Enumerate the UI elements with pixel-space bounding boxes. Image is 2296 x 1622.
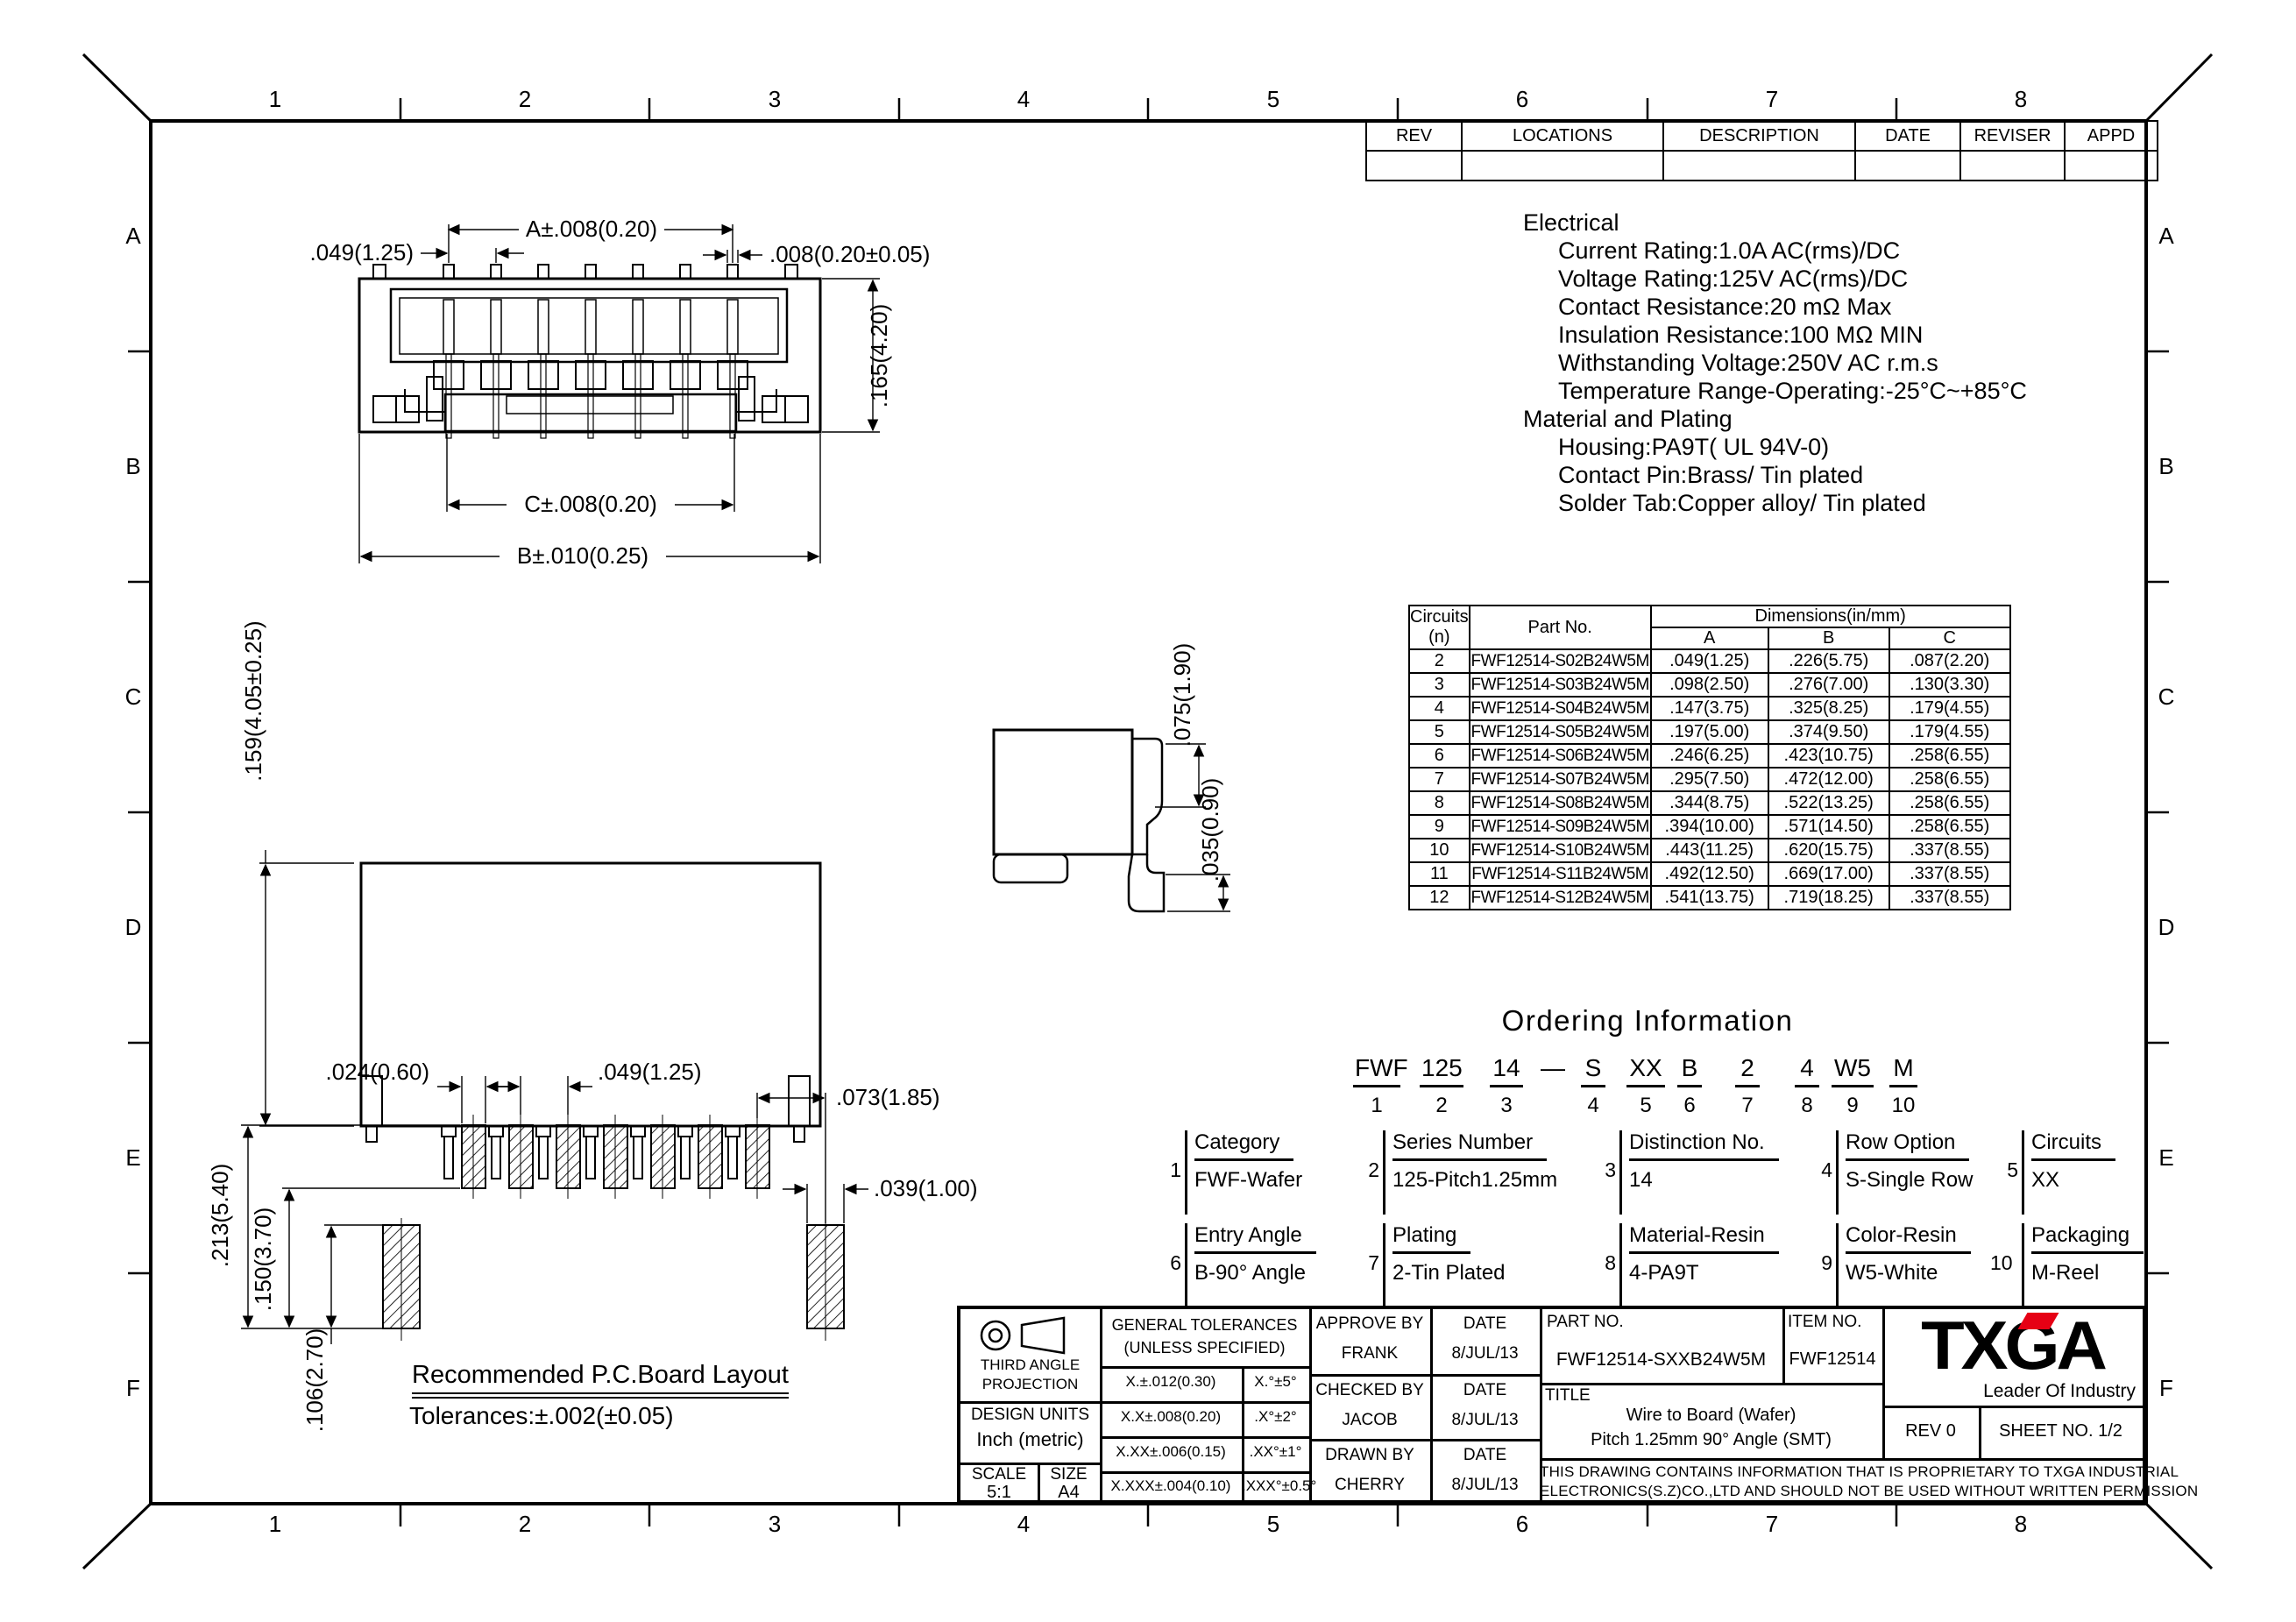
proprietary-notice-line2: ELECTRONICS(S.Z)CO.,LTD AND SHOULD NOT B… xyxy=(1540,1483,2143,1500)
dim-top-span-c: C±.008(0.20) xyxy=(524,491,657,517)
border-row-label: C xyxy=(2149,684,2184,711)
item-no-value: FWF12514 xyxy=(1782,1349,1882,1370)
table-row: 8FWF12514-S08B24W5M.344(8.75).522(13.25)… xyxy=(1409,791,2010,815)
border-row-label: B xyxy=(116,453,151,480)
material-title: Material and Plating xyxy=(1523,405,2027,433)
dim-pcb-mid-height: .150(3.70) xyxy=(250,1208,276,1312)
border-row-label: F xyxy=(2149,1375,2184,1402)
tolerance-linear: X.XX±.006(0.15) xyxy=(1102,1443,1240,1461)
border-col-label: 5 xyxy=(1256,86,1291,113)
scale-value: 5:1 xyxy=(960,1483,1038,1503)
date-value: 8/JUL/13 xyxy=(1430,1476,1540,1495)
general-tolerances-label: GENERAL TOLERANCES xyxy=(1100,1316,1309,1335)
date-label: DATE xyxy=(1430,1381,1540,1400)
ordering-field-series: 2 Series Number125-Pitch1.25mm xyxy=(1383,1130,1557,1215)
rev-value: REV 0 xyxy=(1882,1421,1979,1441)
date-value: 8/JUL/13 xyxy=(1430,1411,1540,1430)
drawing-title-line2: Pitch 1.25mm 90° Angle (SMT) xyxy=(1540,1430,1882,1450)
part-code-segment: S4 xyxy=(1581,1054,1605,1118)
border-col-label: 2 xyxy=(507,86,542,113)
tolerance-linear: X.±.012(0.30) xyxy=(1102,1373,1240,1391)
table-row: 6FWF12514-S06B24W5M.246(6.25).423(10.75)… xyxy=(1409,744,2010,768)
table-row: 12FWF12514-S12B24W5M.541(13.75).719(18.2… xyxy=(1409,886,2010,910)
dim-a-header: A xyxy=(1651,627,1768,649)
border-col-label: 8 xyxy=(2003,1511,2038,1538)
border-row-label: E xyxy=(116,1144,151,1172)
part-code-segment: B6 xyxy=(1677,1054,1702,1118)
table-row: 11FWF12514-S11B24W5M.492(12.50).669(17.0… xyxy=(1409,862,2010,886)
title-label: TITLE xyxy=(1545,1386,1591,1406)
part-code-segment: 1252 xyxy=(1420,1054,1463,1118)
txga-logo: TXGA Leader Of Industry xyxy=(1882,1309,2143,1406)
ordering-field-packaging: 10 PackagingM-Reel xyxy=(2022,1223,2144,1307)
date-header: DATE xyxy=(1855,121,1960,151)
border-col-label: 8 xyxy=(2003,86,2038,113)
txga-logo-text: TXGA xyxy=(1877,1306,2148,1385)
border-col-label: 7 xyxy=(1754,86,1789,113)
revision-empty-row xyxy=(1366,151,2158,181)
dim-pcb-pitch: .049(1.25) xyxy=(598,1059,702,1085)
ordering-field-distinction: 3 Distinction No.14 xyxy=(1619,1130,1779,1215)
drawing-title-line1: Wire to Board (Wafer) xyxy=(1540,1406,1882,1426)
drawing-sheet: A±.008(0.20) .049(1.25) .008(0.20±0.05) … xyxy=(0,0,2296,1622)
dim-pcb-tab-height: .106(2.70) xyxy=(301,1328,328,1433)
revision-table: REV LOCATIONS DESCRIPTION DATE REVISER A… xyxy=(1365,120,2158,181)
spec-line: Contact Resistance:20 mΩ Max xyxy=(1523,293,2027,321)
date-label: DATE xyxy=(1430,1314,1540,1334)
pcb-dimensions xyxy=(241,1076,868,1344)
pcb-layout xyxy=(241,1076,868,1344)
sheet-no-value: SHEET NO. 1/2 xyxy=(1979,1421,2143,1441)
tolerance-angular: .X°±2° xyxy=(1242,1408,1309,1426)
border-col-label: 4 xyxy=(1006,86,1041,113)
border-col-label: 1 xyxy=(258,86,293,113)
circuits-header: Circuits(n) xyxy=(1409,606,1470,649)
date-label: DATE xyxy=(1430,1446,1540,1465)
border-col-label: 2 xyxy=(507,1511,542,1538)
drawn-by-name: CHERRY xyxy=(1309,1476,1430,1495)
dim-top-height: .165(4.20) xyxy=(866,304,892,408)
part-code-segment: 27 xyxy=(1735,1054,1760,1118)
dim-front-height: .159(4.05±0.25) xyxy=(240,620,266,781)
rev-header: REV xyxy=(1366,121,1462,151)
border-col-label: 5 xyxy=(1256,1511,1291,1538)
tolerance-angular: .XX°±1° xyxy=(1242,1443,1309,1461)
proprietary-notice-line1: THIS DRAWING CONTAINS INFORMATION THAT I… xyxy=(1540,1463,2143,1481)
dim-pcb-pad-width: .024(0.60) xyxy=(325,1059,429,1085)
checked-by-name: JACOB xyxy=(1309,1411,1430,1430)
part-code-segment: M10 xyxy=(1889,1054,1917,1118)
ordering-field-row-option: 4 Row OptionS-Single Row xyxy=(1836,1130,1973,1215)
dim-top-pitch: .049(1.25) xyxy=(309,239,414,266)
electrical-title: Electrical xyxy=(1523,209,2027,237)
border-row-label: E xyxy=(2149,1144,2184,1172)
ordering-field-category: 1 CategoryFWF-Wafer xyxy=(1185,1130,1302,1215)
part-code-segment: 143 xyxy=(1490,1054,1523,1118)
dim-top-span-a: A±.008(0.20) xyxy=(526,216,657,242)
part-no-header: Part No. xyxy=(1470,606,1651,649)
electrical-specs: Electrical Current Rating:1.0A AC(rms)/D… xyxy=(1523,209,2027,517)
appd-header: APPD xyxy=(2065,121,2158,151)
spec-line: Current Rating:1.0A AC(rms)/DC xyxy=(1523,237,2027,265)
tolerance-linear: X.XXX±.004(0.10) xyxy=(1102,1477,1240,1495)
border-row-label: F xyxy=(116,1375,151,1402)
pcb-layout-tolerance: Tolerances:±.002(±0.05) xyxy=(409,1402,674,1430)
tolerance-angular: X.°±5° xyxy=(1242,1373,1309,1391)
ordering-field-material: 8 Material-Resin4-PA9T xyxy=(1619,1223,1779,1307)
border-row-label: D xyxy=(116,914,151,941)
dim-side-tab: .035(0.90) xyxy=(1197,778,1223,882)
spec-line: Housing:PA9T( UL 94V-0) xyxy=(1523,433,2027,461)
projection-label2: PROJECTION xyxy=(960,1376,1100,1393)
drawn-by-label: DRAWN BY xyxy=(1309,1446,1430,1465)
spec-line: Insulation Resistance:100 MΩ MIN xyxy=(1523,321,2027,349)
table-row: 5FWF12514-S05B24W5M.197(5.00).374(9.50).… xyxy=(1409,720,2010,744)
dim-top-pin-width: .008(0.20±0.05) xyxy=(769,241,930,267)
dim-top-span-b: B±.010(0.25) xyxy=(517,542,648,569)
size-value: A4 xyxy=(1038,1483,1100,1503)
design-units-value: Inch (metric) xyxy=(960,1428,1100,1451)
part-code-segment: FWF1 xyxy=(1353,1054,1400,1118)
ordering-field-entry-angle: 6 Entry AngleB-90° Angle xyxy=(1185,1223,1316,1307)
table-row: 3FWF12514-S03B24W5M.098(2.50).276(7.00).… xyxy=(1409,673,2010,697)
table-row: 4FWF12514-S04B24W5M.147(3.75).325(8.25).… xyxy=(1409,697,2010,720)
part-no-value: FWF12514-SXXB24W5M xyxy=(1540,1349,1782,1371)
border-row-label: A xyxy=(116,223,151,250)
dim-b-header: B xyxy=(1768,627,1889,649)
general-tolerances-label2: (UNLESS SPECIFIED) xyxy=(1100,1339,1309,1357)
dim-side-plate: .075(1.90) xyxy=(1169,643,1195,747)
dim-pcb-tab-width: .039(1.00) xyxy=(874,1175,978,1201)
spec-line: Temperature Range-Operating:-25°C~+85°C xyxy=(1523,377,2027,405)
border-row-label: D xyxy=(2149,914,2184,941)
approve-by-label: APPROVE BY xyxy=(1309,1314,1430,1334)
border-row-label: A xyxy=(2149,223,2184,250)
reviser-header: REVISER xyxy=(1960,121,2065,151)
table-row: 9FWF12514-S09B24W5M.394(10.00).571(14.50… xyxy=(1409,815,2010,839)
projection-label: THIRD ANGLE xyxy=(960,1356,1100,1374)
ordering-field-plating: 7 Plating2-Tin Plated xyxy=(1383,1223,1506,1307)
spec-line: Withstanding Voltage:250V AC r.m.s xyxy=(1523,349,2027,377)
border-col-label: 3 xyxy=(757,1511,792,1538)
dim-pcb-last-gap: .073(1.85) xyxy=(836,1084,940,1110)
border-row-label: C xyxy=(116,684,151,711)
scale-label: SCALE xyxy=(960,1465,1038,1484)
third-angle-projection-icon xyxy=(976,1314,1085,1356)
part-code-segment: W59 xyxy=(1832,1054,1874,1118)
design-units-label: DESIGN UNITS xyxy=(960,1406,1100,1425)
spec-line: Solder Tab:Copper alloy/ Tin plated xyxy=(1523,489,2027,517)
title-block: THIRD ANGLE PROJECTION DESIGN UNITS Inch… xyxy=(957,1306,2146,1504)
table-row: 7FWF12514-S07B24W5M.295(7.50).472(12.00)… xyxy=(1409,768,2010,791)
locations-header: LOCATIONS xyxy=(1462,121,1663,151)
tolerance-linear: X.X±.008(0.20) xyxy=(1102,1408,1240,1426)
border-col-label: 3 xyxy=(757,86,792,113)
date-value: 8/JUL/13 xyxy=(1430,1344,1540,1363)
ordering-field-circuits: 5 CircuitsXX xyxy=(2022,1130,2115,1215)
size-label: SIZE xyxy=(1038,1465,1100,1484)
dims-header: Dimensions(in/mm) xyxy=(1651,606,2010,627)
pcb-layout-title: Recommended P.C.Board Layout xyxy=(412,1361,789,1399)
spec-line: Voltage Rating:125V AC(rms)/DC xyxy=(1523,265,2027,293)
ordering-field-color: 9 Color-ResinW5-White xyxy=(1836,1223,1971,1307)
border-col-label: 4 xyxy=(1006,1511,1041,1538)
part-code-dash: — xyxy=(1541,1054,1565,1082)
checked-by-label: CHECKED BY xyxy=(1309,1381,1430,1400)
table-row: 2FWF12514-S02B24W5M.049(1.25).226(5.75).… xyxy=(1409,649,2010,673)
side-view xyxy=(994,730,1164,911)
dim-pcb-total-height: .213(5.40) xyxy=(207,1164,233,1268)
border-col-label: 1 xyxy=(258,1511,293,1538)
part-code-segment: XX5 xyxy=(1626,1054,1665,1118)
approve-by-name: FRANK xyxy=(1309,1344,1430,1363)
border-col-label: 7 xyxy=(1754,1511,1789,1538)
table-row: 10FWF12514-S10B24W5M.443(11.25).620(15.7… xyxy=(1409,839,2010,862)
tolerance-angular: .XXX°±0.5° xyxy=(1242,1477,1309,1495)
txga-logo-tagline: Leader Of Industry xyxy=(1983,1381,2136,1402)
border-col-label: 6 xyxy=(1505,1511,1540,1538)
top-view xyxy=(359,265,820,438)
ordering-title: Ordering Information xyxy=(1481,1004,1814,1038)
border-row-label: B xyxy=(2149,453,2184,480)
part-no-label: PART NO. xyxy=(1547,1313,1624,1332)
border-col-label: 6 xyxy=(1505,86,1540,113)
description-header: DESCRIPTION xyxy=(1663,121,1855,151)
dimensions-table: Circuits(n) Part No. Dimensions(in/mm) A… xyxy=(1408,605,2011,910)
part-code-segment: 48 xyxy=(1795,1054,1819,1118)
dim-c-header: C xyxy=(1889,627,2010,649)
spec-line: Contact Pin:Brass/ Tin plated xyxy=(1523,461,2027,489)
item-no-label: ITEM NO. xyxy=(1788,1313,1861,1332)
